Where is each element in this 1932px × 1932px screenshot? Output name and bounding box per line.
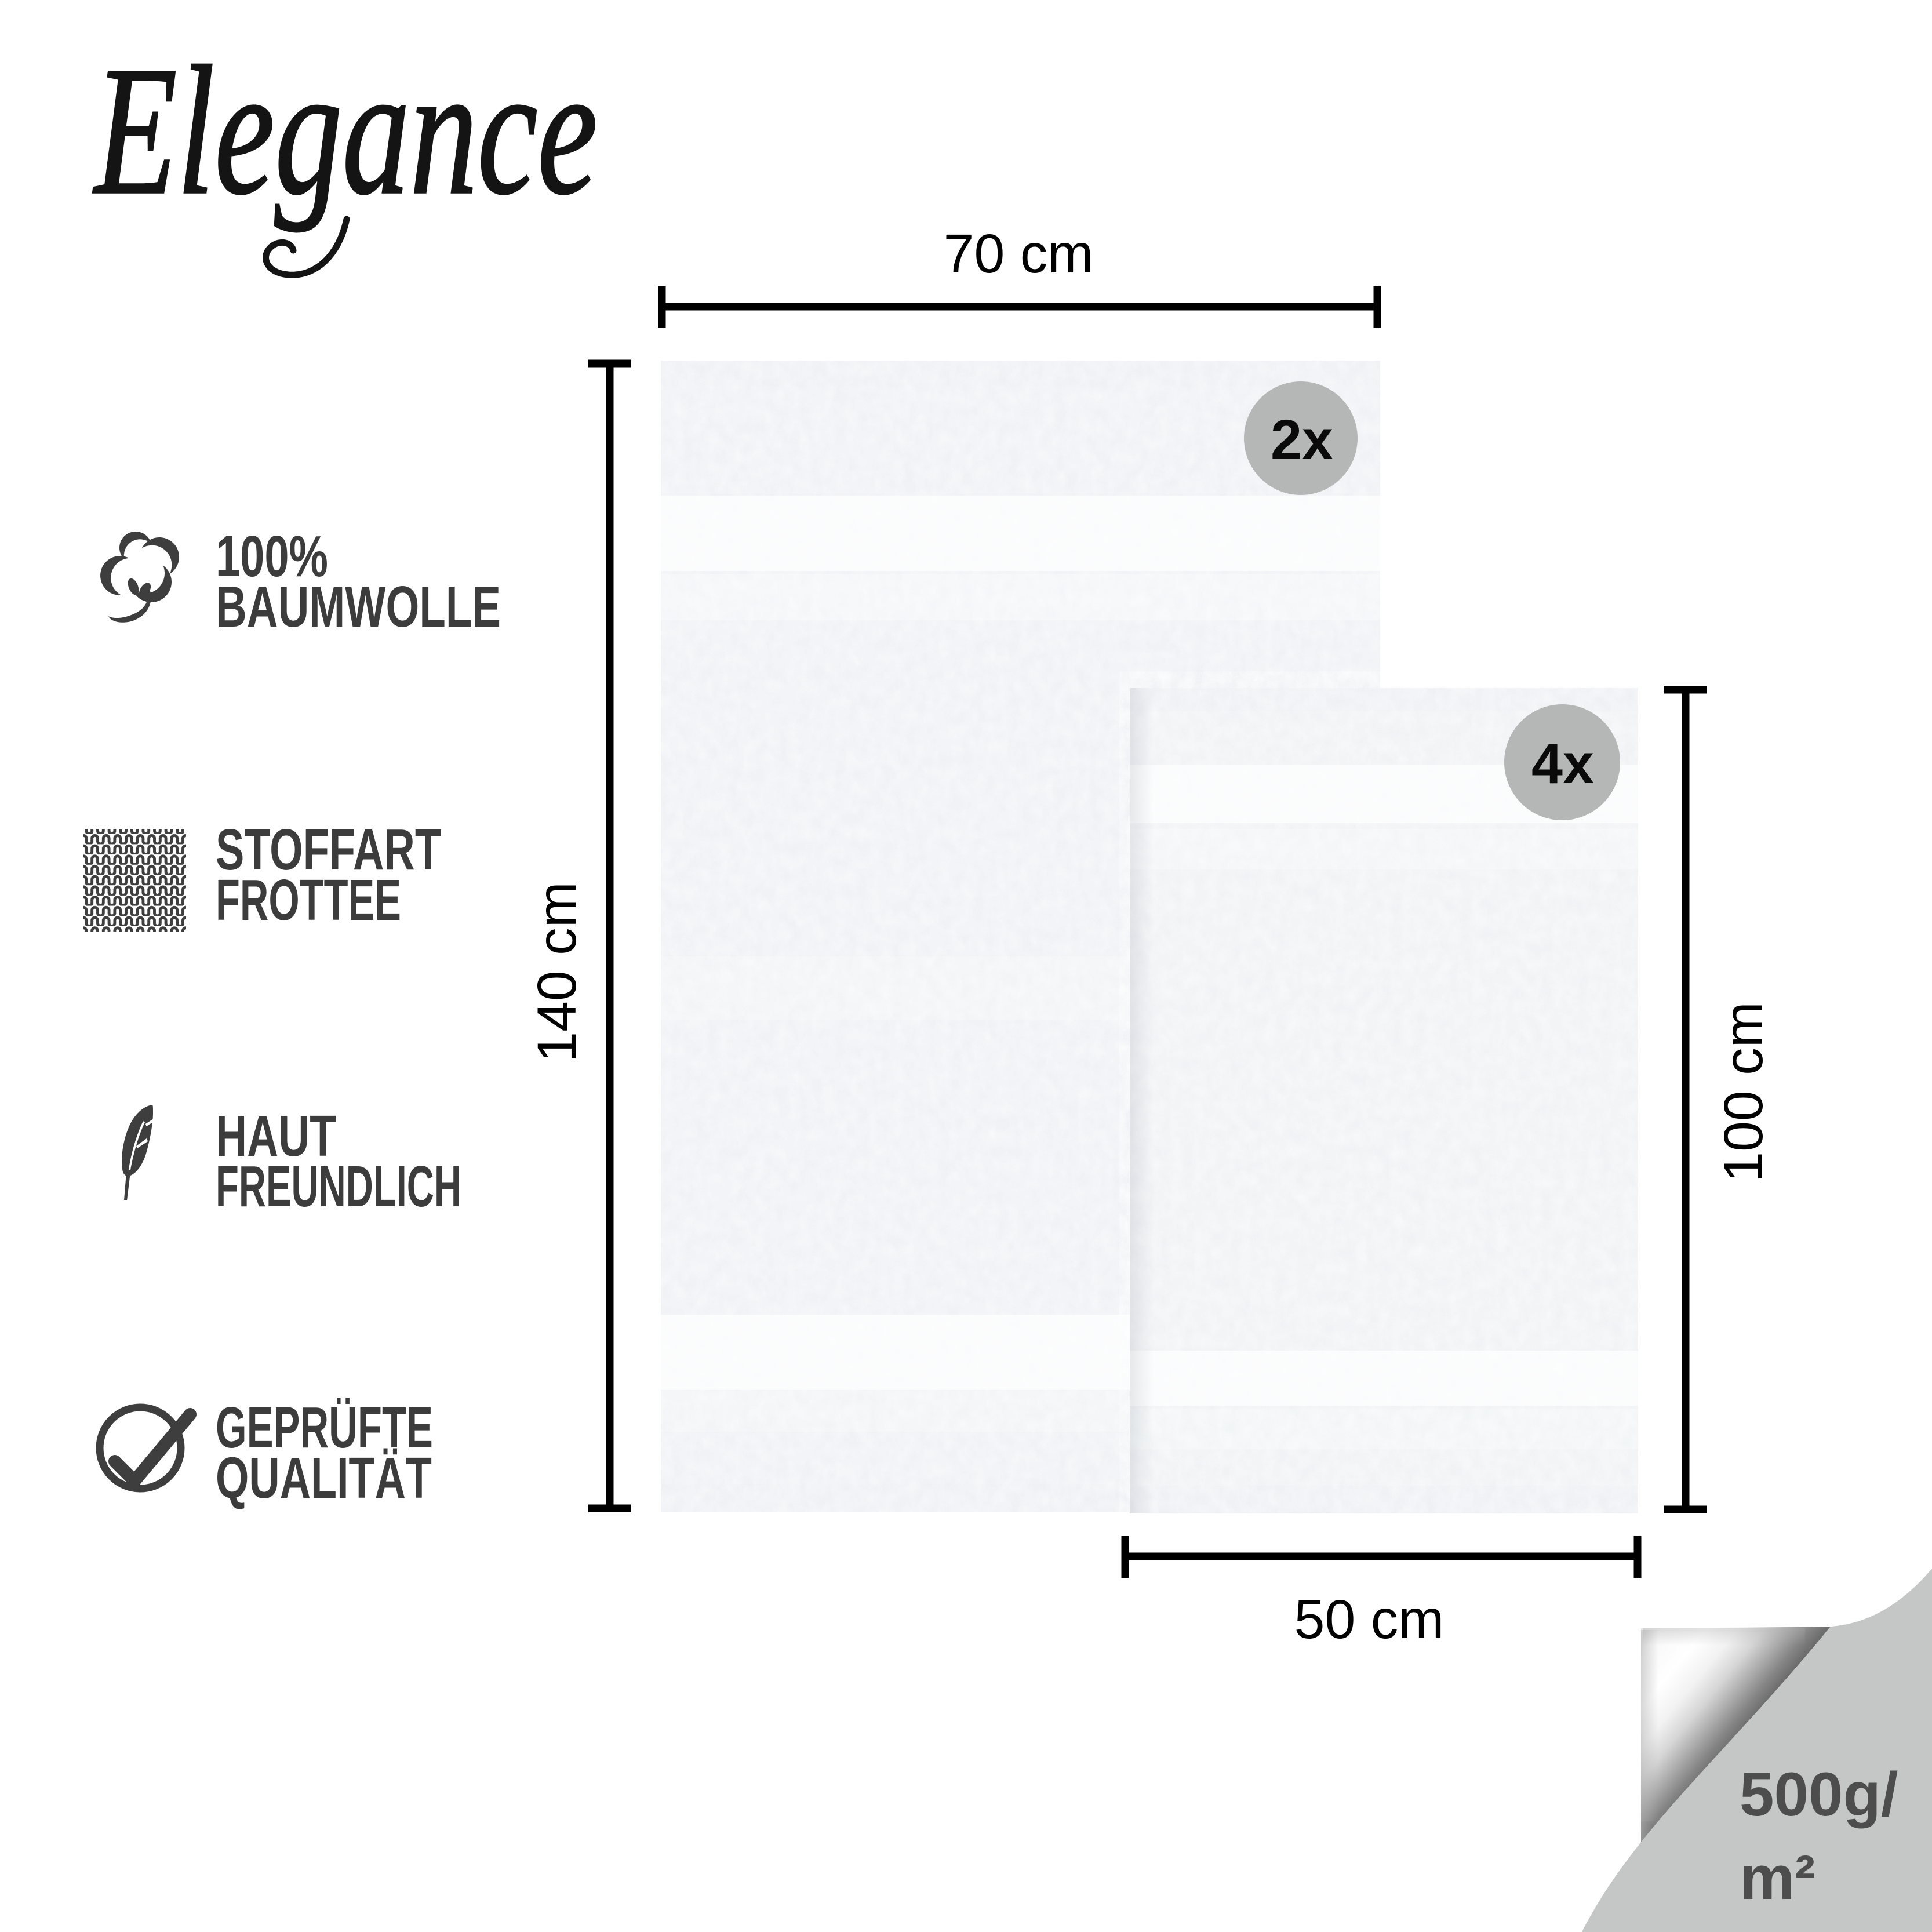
svg-text:70 cm: 70 cm: [944, 223, 1094, 285]
svg-text:4x: 4x: [1531, 732, 1594, 795]
svg-text:140 cm: 140 cm: [526, 882, 588, 1063]
svg-text:500g/: 500g/: [1740, 1759, 1898, 1829]
svg-text:m²: m²: [1740, 1843, 1815, 1912]
svg-text:BAUMWOLLE: BAUMWOLLE: [216, 574, 501, 639]
svg-text:QUALITÄT: QUALITÄT: [216, 1446, 432, 1511]
svg-text:2x: 2x: [1271, 408, 1333, 471]
svg-text:FREUNDLICH: FREUNDLICH: [216, 1154, 461, 1219]
svg-text:FROTTEE: FROTTEE: [216, 868, 401, 933]
svg-text:Elegance: Elegance: [92, 28, 598, 233]
svg-text:100 cm: 100 cm: [1713, 1002, 1774, 1183]
svg-text:50 cm: 50 cm: [1294, 1589, 1445, 1650]
